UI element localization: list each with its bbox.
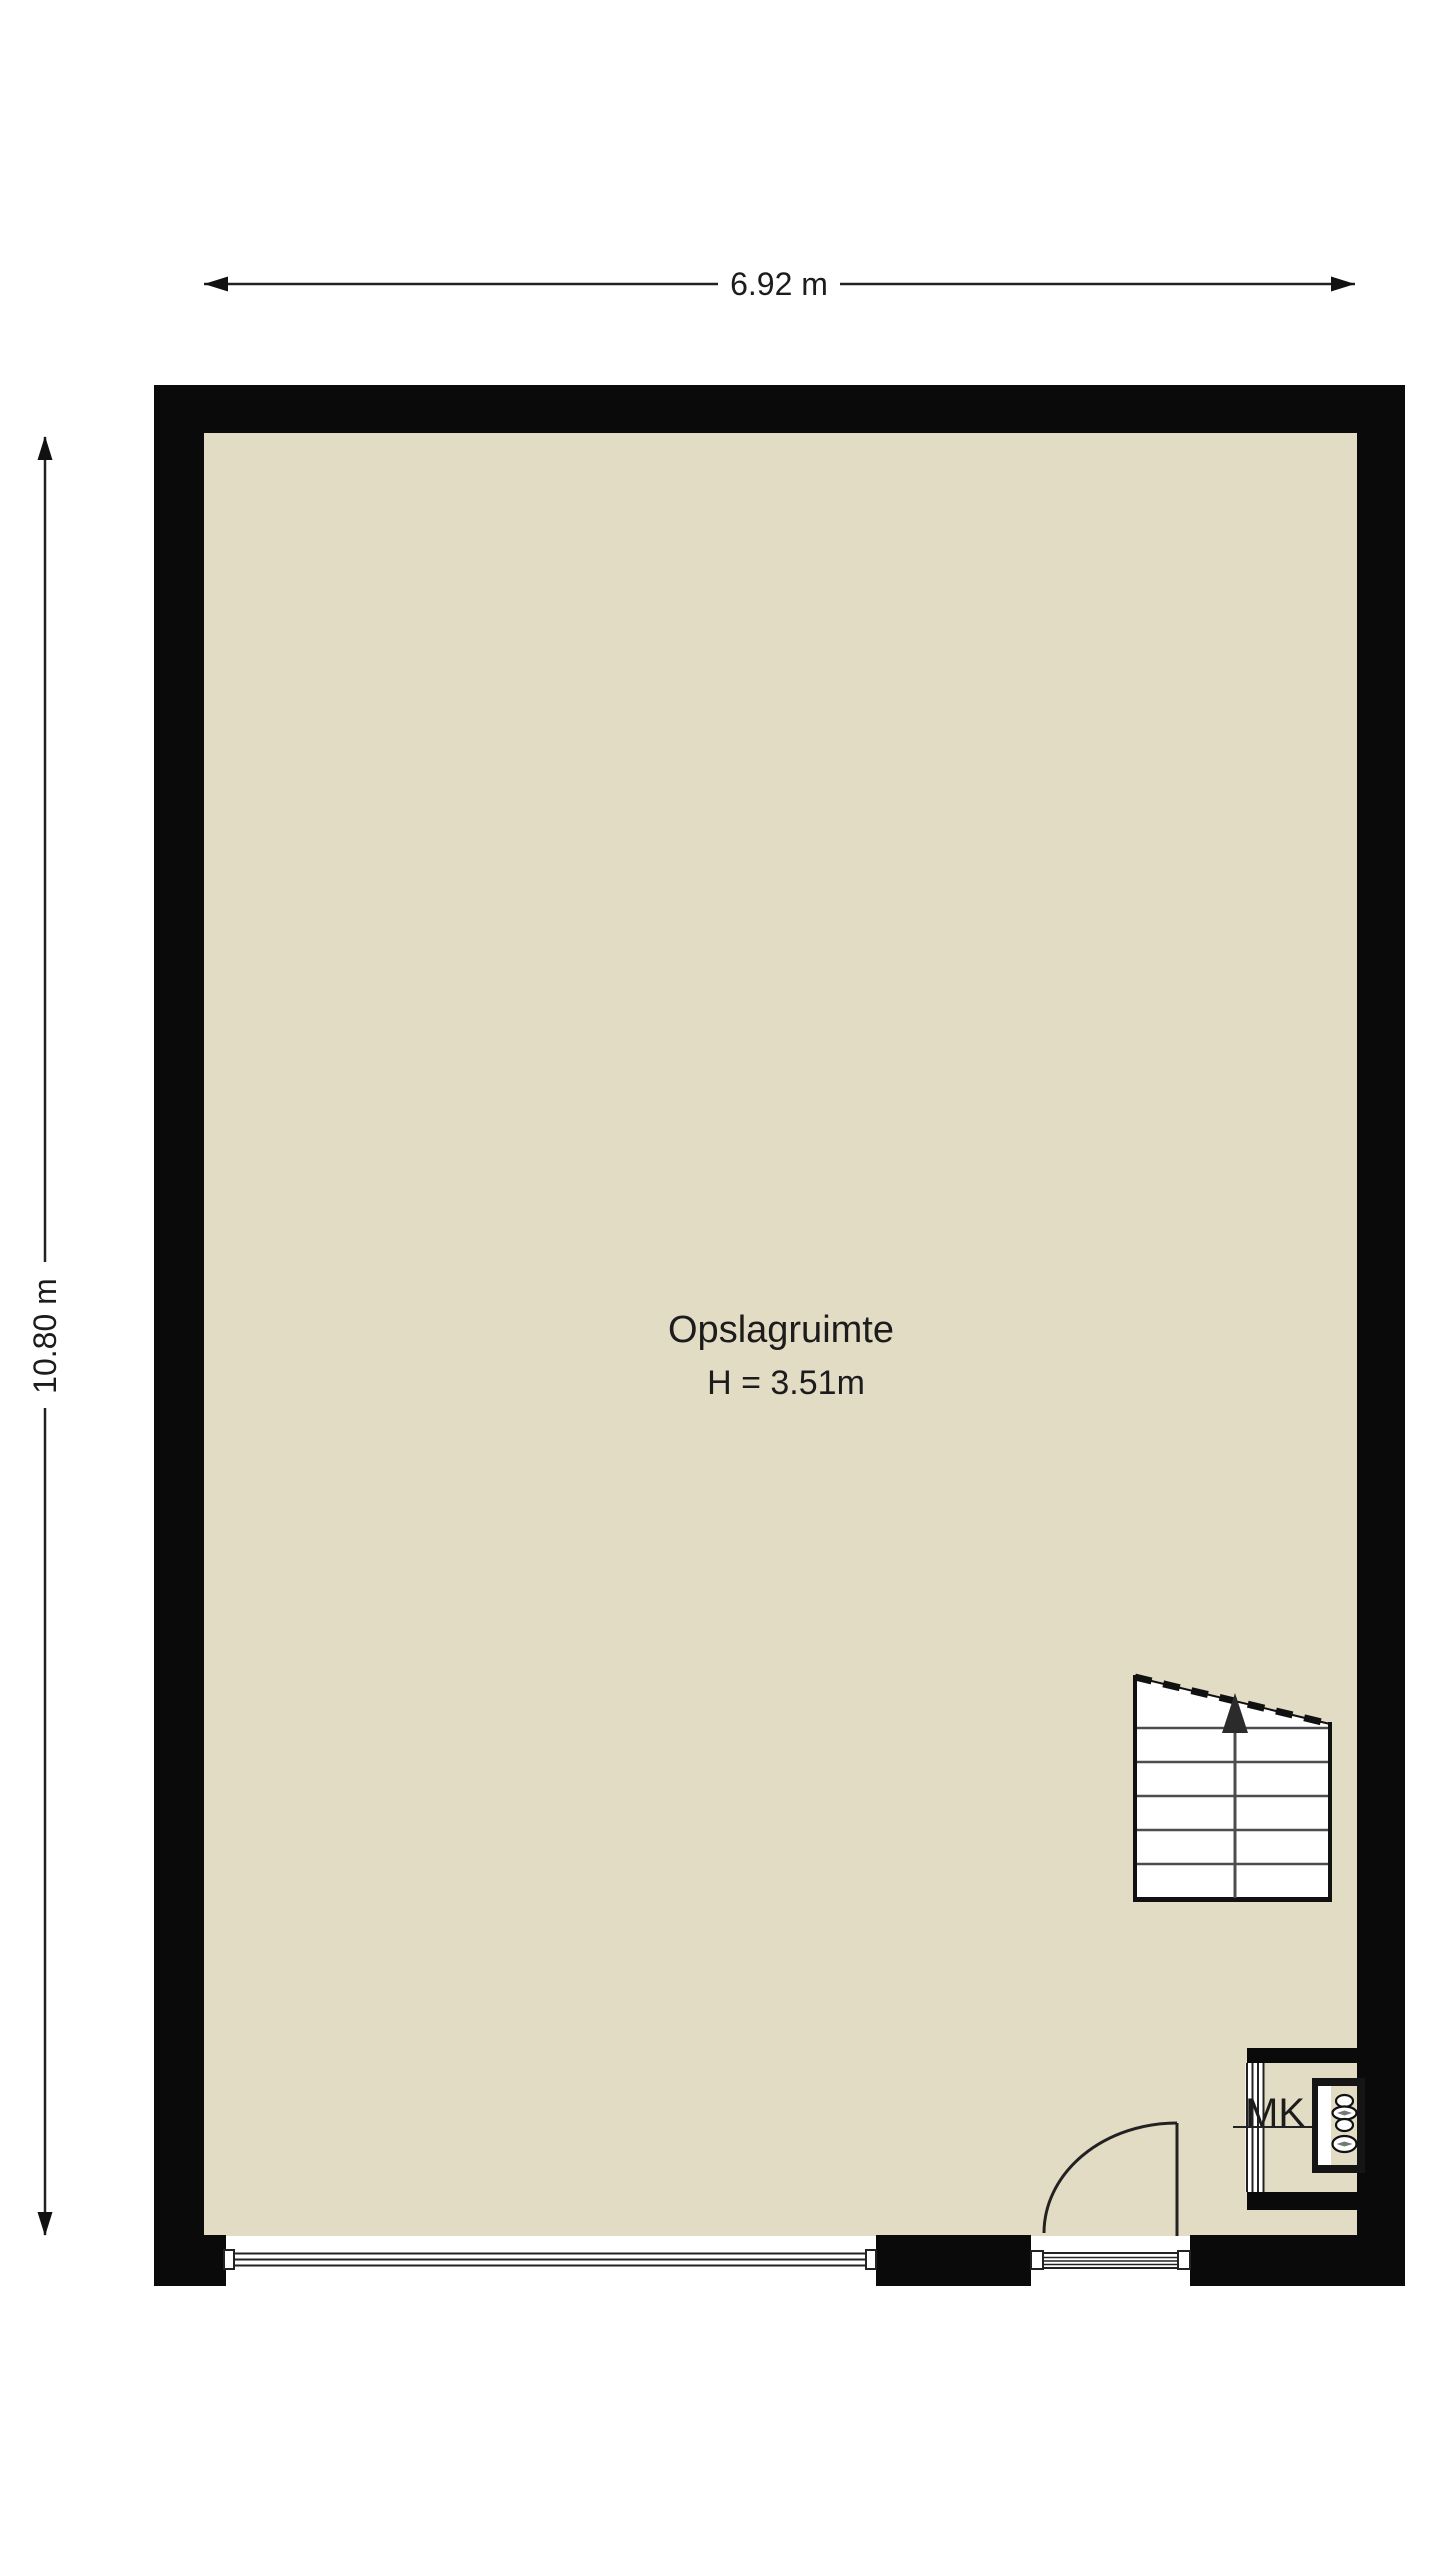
room-name-label: Opslagruimte <box>668 1309 894 1351</box>
dimension-height: 10.80 m <box>27 436 63 2236</box>
arrow-right-icon <box>1331 277 1355 292</box>
window-end-cap <box>1178 2251 1190 2269</box>
window-long <box>224 2250 876 2269</box>
wall-left <box>154 385 204 2286</box>
window-end-cap <box>866 2250 876 2269</box>
electric-meter-symbol-icon <box>1312 2078 1365 2173</box>
meter-dial <box>1336 2095 1353 2107</box>
arrow-up-icon <box>38 436 53 460</box>
meter-unit-strip <box>1318 2086 1331 2165</box>
meter-closet-wall-bottom <box>1247 2192 1360 2210</box>
dimension-height-label: 10.80 m <box>27 1278 63 1394</box>
dimension-width: 6.92 m <box>204 266 1355 302</box>
floor-plan: 6.92 m 10.80 m <box>0 0 1440 2560</box>
wall-bottom-left-segment <box>154 2235 226 2286</box>
meter-closet-wall-top <box>1247 2048 1360 2063</box>
wall-bottom-right-segment <box>1190 2235 1405 2286</box>
arrow-down-icon <box>38 2212 53 2236</box>
wall-bottom-middle-segment <box>876 2235 1031 2286</box>
wall-top <box>154 385 1405 433</box>
arrow-left-icon <box>204 277 228 292</box>
window-end-cap <box>224 2250 234 2269</box>
room-height-label: H = 3.51m <box>707 1364 865 1402</box>
meter-dial <box>1336 2119 1353 2131</box>
wall-right <box>1357 385 1405 2286</box>
window-end-cap <box>1031 2251 1043 2269</box>
dimension-width-label: 6.92 m <box>730 266 828 302</box>
meter-closet-label: MK <box>1245 2091 1305 2135</box>
